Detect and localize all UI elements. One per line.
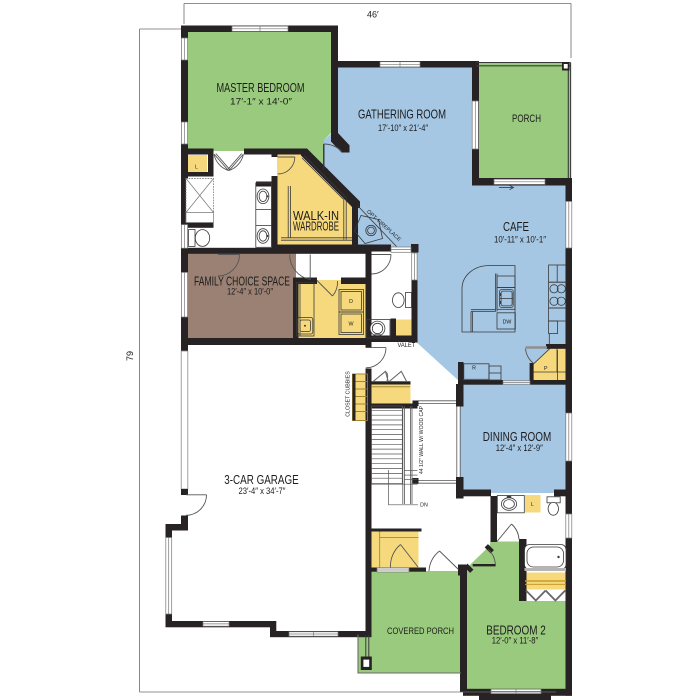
svg-text:GATHERING ROOM: GATHERING ROOM bbox=[358, 108, 446, 122]
svg-text:CAFE: CAFE bbox=[503, 220, 529, 234]
svg-text:P: P bbox=[544, 366, 548, 372]
svg-text:10′-11″ x 10′-1″: 10′-11″ x 10′-1″ bbox=[494, 235, 547, 245]
svg-text:46′: 46′ bbox=[367, 10, 379, 20]
svg-text:12′-4″ x 12′-9″: 12′-4″ x 12′-9″ bbox=[496, 443, 544, 453]
svg-text:79: 79 bbox=[125, 351, 135, 361]
svg-text:MASTER BEDROOM: MASTER BEDROOM bbox=[217, 81, 305, 95]
svg-text:R: R bbox=[472, 366, 476, 372]
svg-text:PORCH: PORCH bbox=[512, 113, 541, 125]
svg-text:VALET: VALET bbox=[398, 343, 416, 349]
svg-text:17′-1″ x 14′-0″: 17′-1″ x 14′-0″ bbox=[230, 97, 293, 107]
svg-text:3-CAR GARAGE: 3-CAR GARAGE bbox=[224, 473, 299, 487]
svg-text:D: D bbox=[349, 299, 353, 305]
svg-text:W: W bbox=[349, 322, 354, 328]
svg-text:DINING ROOM: DINING ROOM bbox=[483, 430, 552, 444]
svg-text:12′-4″ x 10′-0″: 12′-4″ x 10′-0″ bbox=[227, 287, 274, 297]
svg-text:44 1/2″ WALL W/ WOOD CAP: 44 1/2″ WALL W/ WOOD CAP bbox=[419, 406, 425, 474]
svg-text:23′-4″ x 34′-7″: 23′-4″ x 34′-7″ bbox=[239, 486, 287, 496]
svg-text:COVERED PORCH: COVERED PORCH bbox=[387, 626, 454, 636]
svg-text:CLOSET CUBBIES: CLOSET CUBBIES bbox=[346, 371, 352, 417]
svg-text:L: L bbox=[195, 165, 198, 171]
svg-text:DN: DN bbox=[420, 503, 428, 509]
svg-text:L: L bbox=[531, 502, 534, 508]
svg-text:12′-0″ x 11′-8″: 12′-0″ x 11′-8″ bbox=[492, 636, 539, 646]
svg-text:DW: DW bbox=[503, 320, 512, 326]
svg-text:17′-10″ x 21′-4″: 17′-10″ x 21′-4″ bbox=[378, 123, 429, 133]
svg-text:WARDROBE: WARDROBE bbox=[293, 220, 339, 234]
